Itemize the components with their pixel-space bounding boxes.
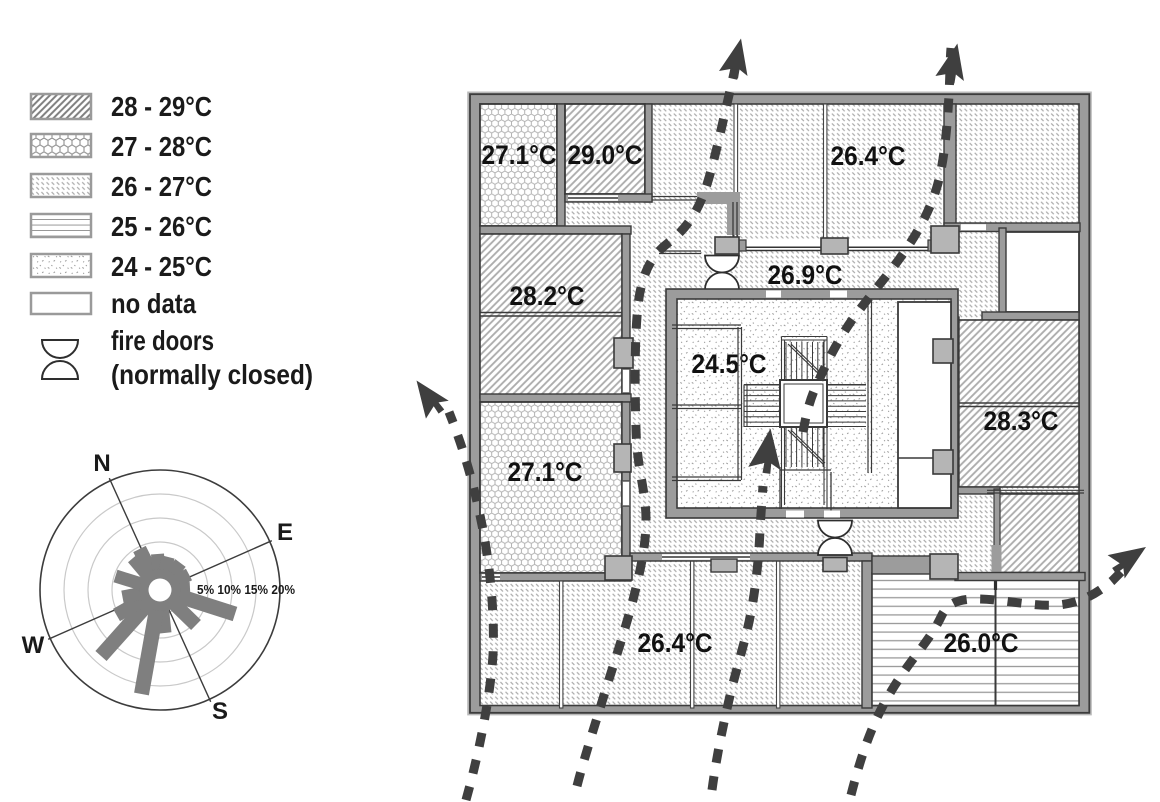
svg-text:27 - 28°C: 27 - 28°C (111, 131, 212, 162)
svg-text:S: S (212, 698, 228, 725)
svg-text:29.0°C: 29.0°C (568, 140, 643, 170)
svg-text:25 - 26°C: 25 - 26°C (111, 211, 212, 242)
svg-text:26.9°C: 26.9°C (768, 260, 843, 290)
svg-text:W: W (22, 632, 45, 659)
svg-text:24 - 25°C: 24 - 25°C (111, 251, 212, 282)
svg-text:27.1°C: 27.1°C (482, 140, 557, 170)
svg-text:28.2°C: 28.2°C (510, 281, 585, 311)
svg-text:27.1°C: 27.1°C (508, 457, 583, 487)
svg-text:N: N (93, 450, 110, 477)
svg-text:28 - 29°C: 28 - 29°C (111, 91, 212, 122)
svg-text:5% 10% 15% 20%: 5% 10% 15% 20% (197, 582, 295, 597)
svg-text:28.3°C: 28.3°C (984, 406, 1059, 436)
svg-text:(normally closed): (normally closed) (111, 359, 313, 390)
svg-text:26.4°C: 26.4°C (831, 141, 906, 171)
svg-text:E: E (277, 519, 293, 546)
svg-text:24.5°C: 24.5°C (692, 349, 767, 379)
svg-text:26 - 27°C: 26 - 27°C (111, 171, 212, 202)
svg-text:no data: no data (111, 288, 197, 319)
svg-text:fire doors: fire doors (111, 325, 214, 356)
svg-text:26.0°C: 26.0°C (944, 628, 1019, 658)
svg-text:26.4°C: 26.4°C (638, 628, 713, 658)
